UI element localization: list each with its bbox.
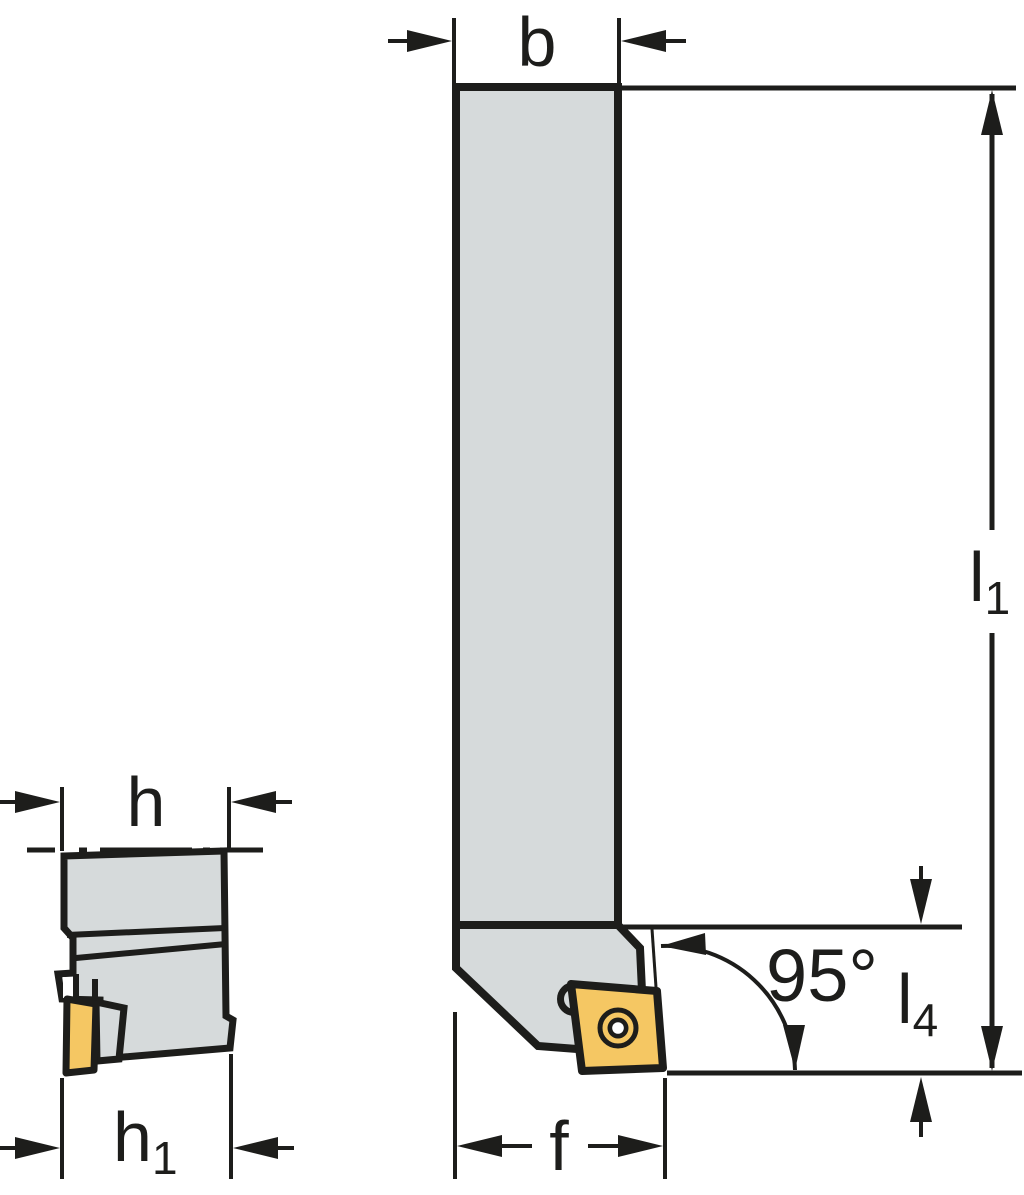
arrowhead-up-icon (981, 90, 1003, 135)
dim-l1-label: l1 (969, 538, 1010, 624)
dimension-h1: h1 (0, 1054, 294, 1184)
side-clamp (96, 1002, 124, 1061)
seat-notch (63, 977, 73, 998)
arrowhead-down-icon (981, 1026, 1003, 1071)
dim-h1-label: h1 (113, 1098, 178, 1184)
dimension-h: h (0, 763, 292, 851)
side-insert (66, 999, 96, 1073)
arrowhead-left-icon (621, 30, 666, 52)
arrowhead-left-icon (231, 791, 276, 813)
dim-l4-label: l4 (897, 960, 938, 1046)
dim-h-label: h (127, 763, 166, 841)
dim-f-label: f (549, 1107, 569, 1185)
dimension-b: b (388, 3, 686, 86)
arrowhead-right-icon (15, 1137, 60, 1159)
angle-label: 95° (766, 934, 878, 1017)
insert-screw-hole (612, 1022, 624, 1034)
side-view: h h1 (0, 763, 294, 1184)
arrowhead-up-icon (910, 1077, 932, 1122)
arrowhead-right-icon (407, 30, 452, 52)
arrowhead-left-icon (233, 1137, 278, 1159)
arrowhead-left-icon (457, 1135, 502, 1157)
arrowhead-right-icon (618, 1135, 663, 1157)
front-view: b l1 l4 f (388, 3, 1022, 1185)
shank (456, 87, 618, 925)
dimension-angle: 95° (661, 933, 878, 1070)
arrowhead-right-icon (15, 791, 60, 813)
dim-b-label: b (518, 3, 557, 81)
technical-drawing-page: b l1 l4 f (0, 0, 1024, 1195)
arrowhead-down-icon (910, 879, 932, 924)
arrowhead-down-icon (783, 1025, 805, 1070)
toolholder-drawing: b l1 l4 f (0, 0, 1024, 1195)
